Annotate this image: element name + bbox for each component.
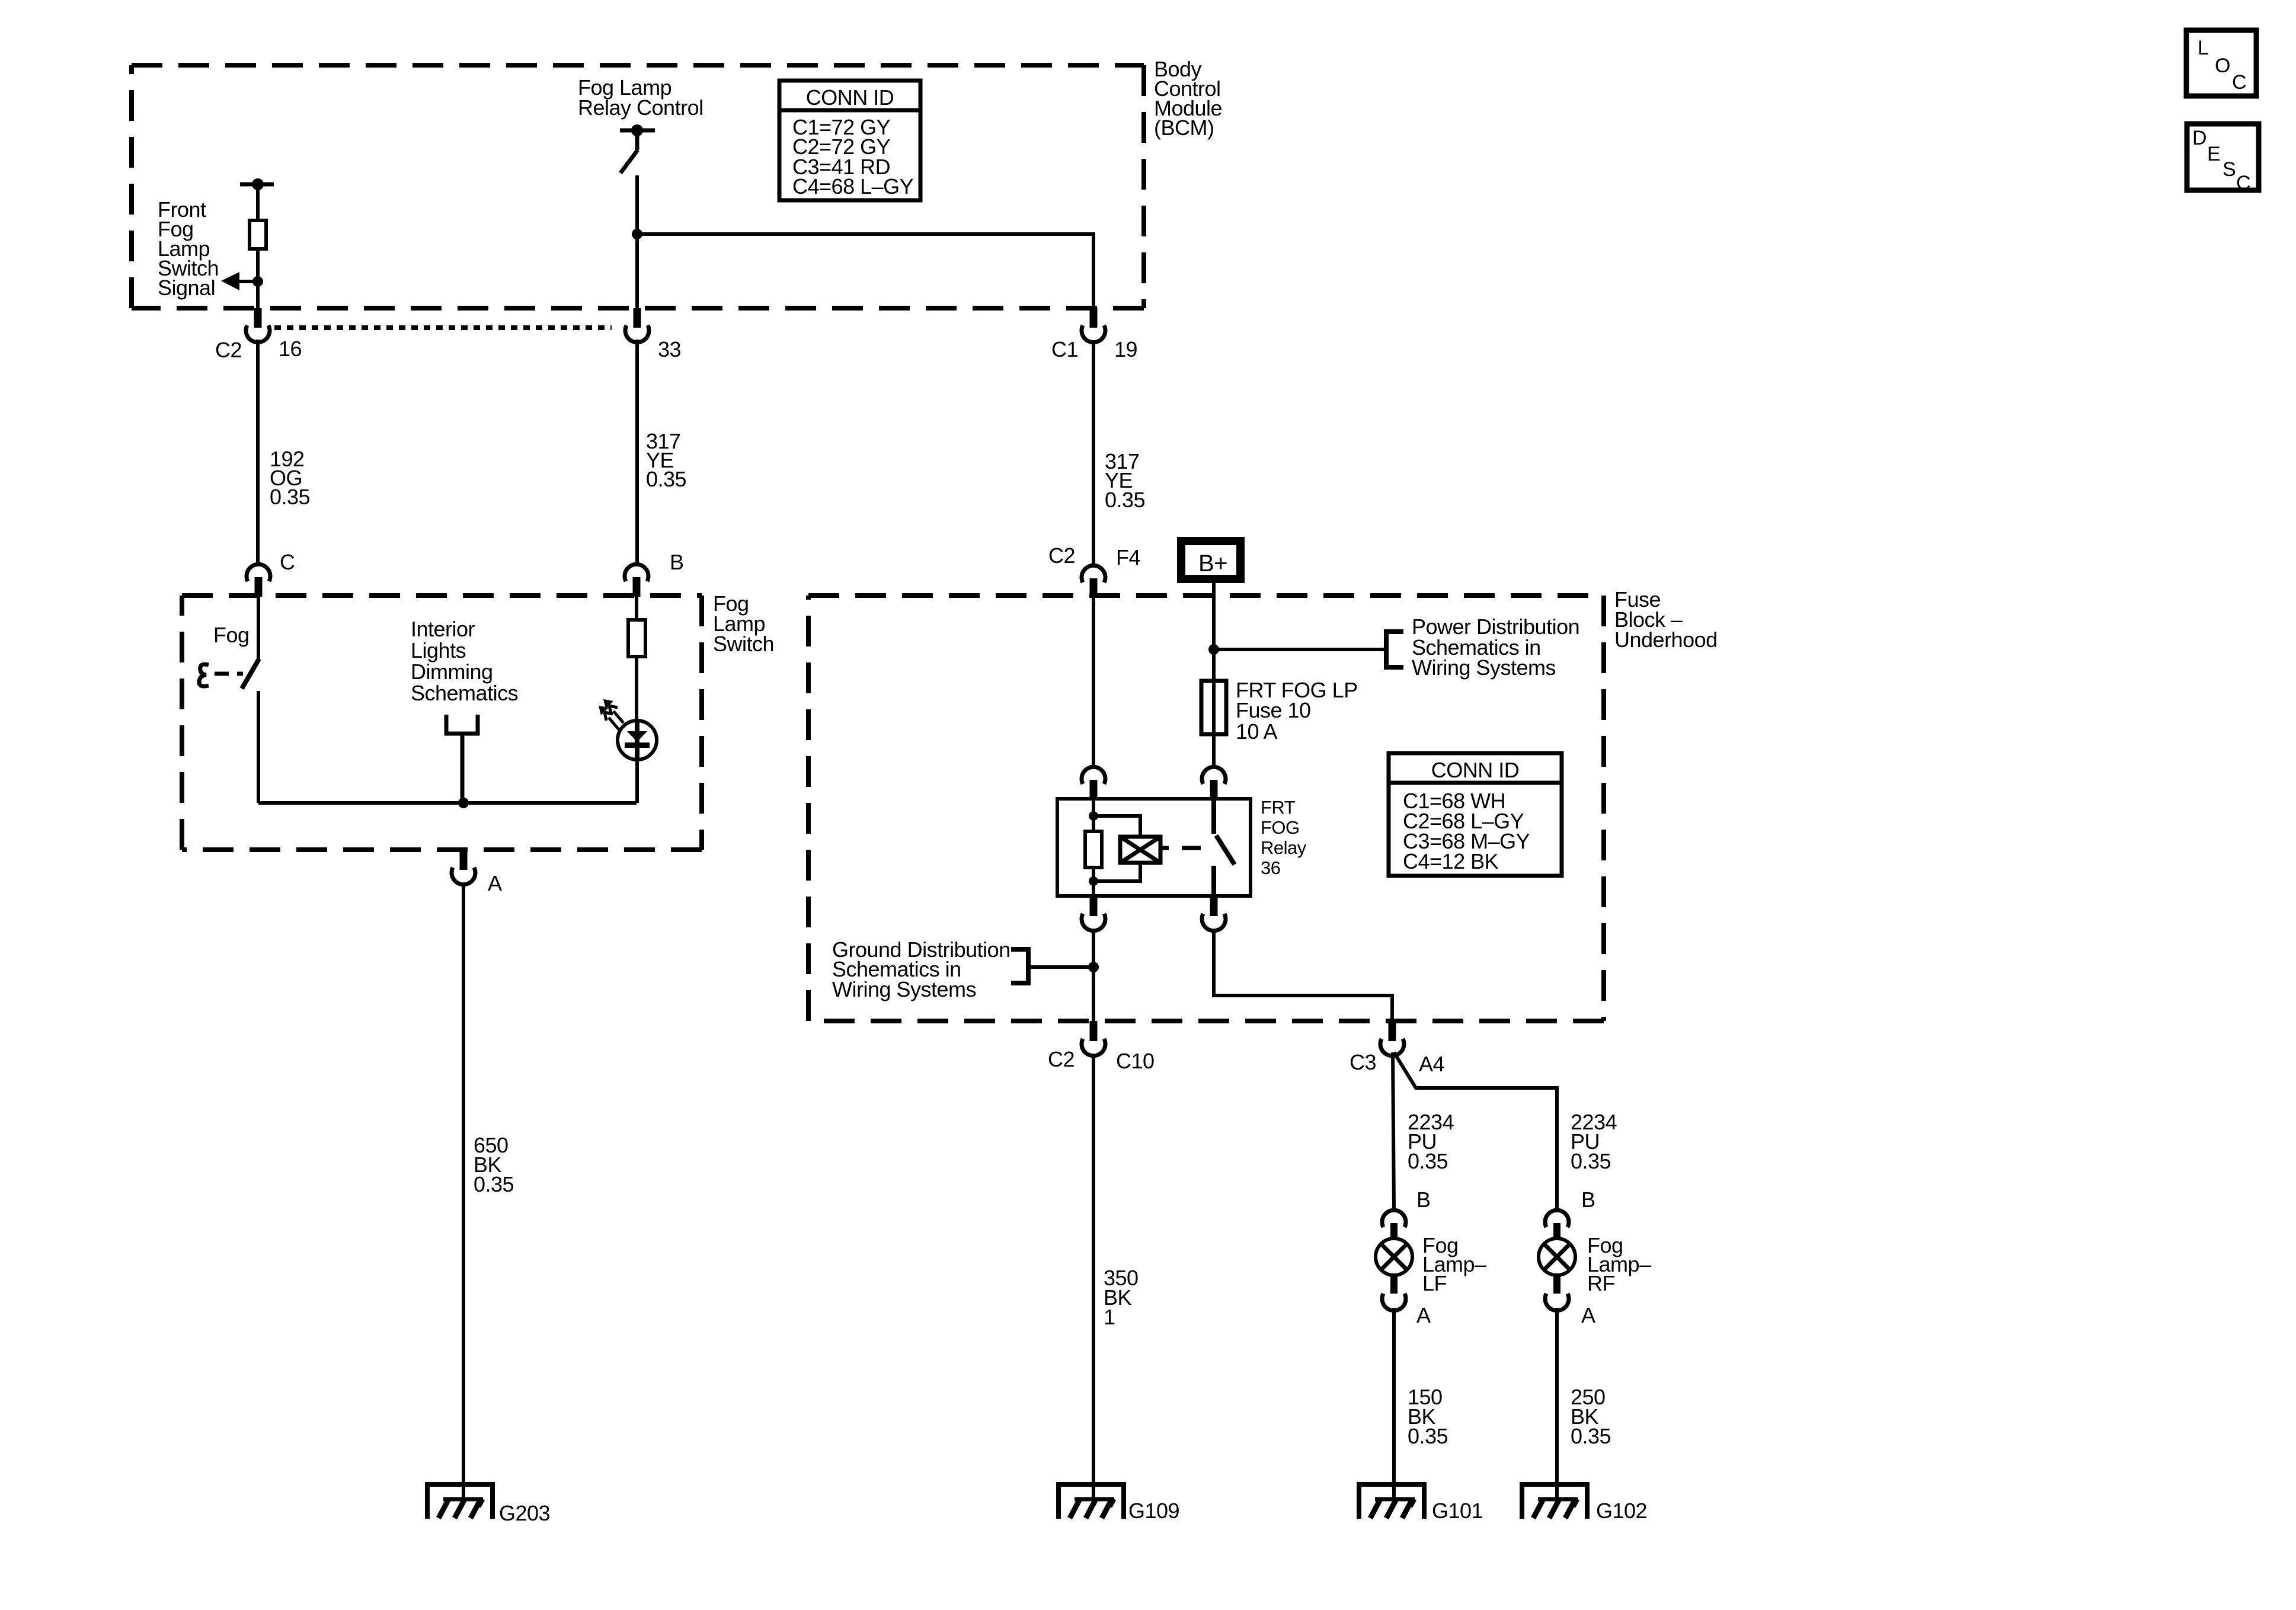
svg-text:D: D [2192, 127, 2207, 149]
svg-text:(BCM): (BCM) [1154, 116, 1214, 140]
svg-text:FOG: FOG [1261, 817, 1300, 838]
svg-text:O: O [2215, 55, 2230, 77]
svg-text:19: 19 [1114, 337, 1137, 361]
svg-text:Dimming: Dimming [411, 660, 493, 684]
svg-text:C4=12 BK: C4=12 BK [1403, 849, 1499, 873]
svg-text:G109: G109 [1128, 1499, 1179, 1523]
svg-text:0.35: 0.35 [646, 467, 686, 491]
svg-text:RF: RF [1587, 1271, 1615, 1295]
svg-text:Schematics: Schematics [411, 681, 518, 705]
svg-text:Wiring Systems: Wiring Systems [832, 977, 976, 1001]
svg-text:Fog: Fog [213, 623, 250, 647]
svg-text:G101: G101 [1432, 1499, 1483, 1523]
svg-text:A: A [488, 871, 502, 895]
svg-text:B: B [670, 550, 684, 574]
svg-text:Underhood: Underhood [1614, 628, 1718, 652]
svg-text:B: B [1581, 1188, 1595, 1212]
svg-text:Lights: Lights [411, 638, 466, 662]
svg-text:0.35: 0.35 [1571, 1149, 1611, 1173]
svg-text:Relay: Relay [1261, 837, 1307, 858]
svg-text:Wiring Systems: Wiring Systems [1412, 655, 1556, 680]
svg-text:C: C [2236, 172, 2250, 194]
svg-text:Switch: Switch [713, 632, 774, 656]
svg-text:F4: F4 [1116, 545, 1140, 569]
svg-text:B+: B+ [1198, 550, 1227, 577]
svg-text:CONN ID: CONN ID [806, 85, 894, 110]
svg-text:E: E [2207, 143, 2220, 165]
svg-text:C2: C2 [1048, 543, 1075, 568]
svg-text:C2: C2 [215, 338, 242, 362]
svg-text:Signal: Signal [158, 276, 215, 300]
svg-text:CONN ID: CONN ID [1431, 758, 1520, 782]
svg-text:33: 33 [658, 337, 681, 361]
svg-text:16: 16 [279, 337, 302, 361]
svg-text:1: 1 [1104, 1305, 1115, 1329]
svg-text:A: A [1581, 1303, 1595, 1327]
svg-text:0.35: 0.35 [1571, 1424, 1611, 1448]
svg-text:A4: A4 [1419, 1052, 1444, 1076]
svg-text:B: B [1416, 1188, 1431, 1212]
svg-text:Fuse 10: Fuse 10 [1236, 698, 1311, 722]
svg-text:0.35: 0.35 [1408, 1149, 1448, 1173]
svg-text:C: C [2232, 71, 2246, 94]
svg-text:C4=68 L–GY: C4=68 L–GY [792, 174, 914, 199]
svg-text:36: 36 [1261, 857, 1280, 878]
svg-text:G102: G102 [1596, 1499, 1647, 1523]
svg-text:Relay Control: Relay Control [578, 95, 703, 120]
svg-text:S: S [2223, 158, 2236, 181]
svg-text:C: C [280, 550, 295, 574]
svg-text:0.35: 0.35 [1408, 1424, 1448, 1448]
svg-text:0.35: 0.35 [1105, 488, 1145, 512]
svg-text:LF: LF [1422, 1271, 1447, 1295]
svg-text:C10: C10 [1116, 1049, 1155, 1073]
svg-text:C2: C2 [1048, 1047, 1075, 1071]
svg-text:FRT: FRT [1261, 797, 1296, 818]
svg-text:L: L [2198, 37, 2208, 59]
svg-text:0.35: 0.35 [474, 1172, 514, 1196]
svg-text:0.35: 0.35 [270, 485, 310, 509]
svg-text:A: A [1416, 1303, 1431, 1327]
svg-text:Interior: Interior [411, 617, 475, 641]
svg-text:10 A: 10 A [1236, 719, 1278, 744]
svg-text:C1: C1 [1051, 337, 1078, 361]
svg-text:G203: G203 [499, 1501, 550, 1525]
svg-text:C3: C3 [1350, 1050, 1376, 1074]
